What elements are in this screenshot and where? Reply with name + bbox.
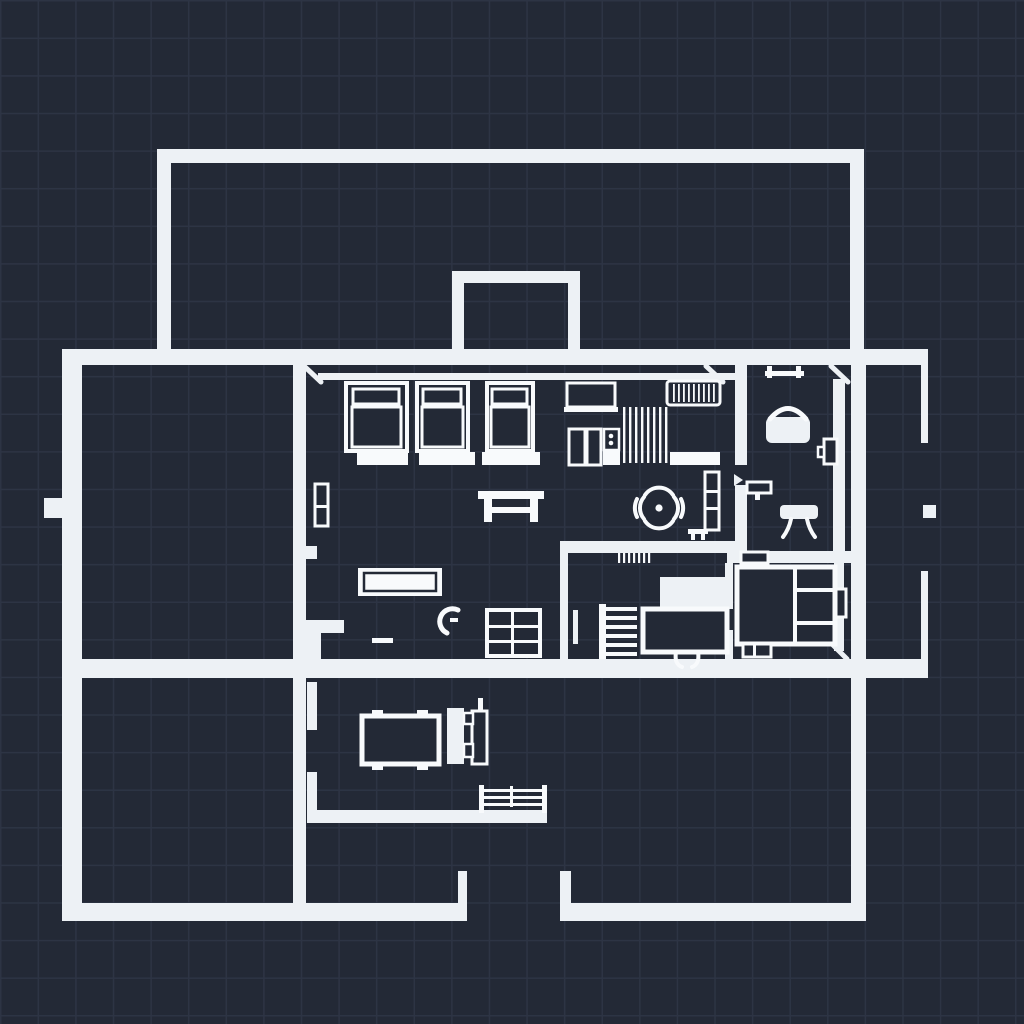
hall-radiator-tooth-4 (633, 553, 635, 563)
right-door-knob (923, 505, 936, 518)
laundry-table-tab-3 (372, 764, 383, 770)
kitchen-plinth-4 (670, 452, 720, 465)
radiator-fin-9 (713, 384, 715, 402)
door-frame-divider (315, 505, 328, 508)
stair-upper-slat-2 (629, 407, 631, 463)
bathroom-shelf-stem (755, 493, 760, 500)
stair-upper-slat-5 (647, 407, 649, 463)
hall-radiator-tooth-2 (623, 553, 625, 563)
middle-band-wall (62, 659, 928, 678)
kitchen-cabinet-3-lower-door (491, 407, 529, 447)
stairs-tread-1 (606, 607, 637, 611)
radiator-fin-7 (703, 384, 705, 402)
living-wall-nub (303, 546, 317, 559)
radiator-fin-2 (678, 384, 680, 402)
stair-upper-slat-7 (659, 407, 661, 463)
bed-headboard-line (793, 569, 797, 642)
hall-cabinet-foot-left (691, 534, 695, 540)
bed-frame (737, 567, 835, 644)
shelf-unit-row-2 (489, 640, 538, 643)
ceiling-fan-hub (655, 504, 662, 511)
bottom-wall-left (62, 903, 467, 921)
upper-band-wall (62, 349, 928, 365)
hall-radiator-tooth-7 (648, 553, 650, 563)
bench-top-bar (478, 491, 544, 499)
drying-rack-hook-upper (464, 713, 473, 724)
laundry-door-jamb-lower (307, 772, 317, 813)
towel-rail-bar (765, 371, 804, 376)
stairs-tread-3 (606, 625, 637, 629)
radiator-fin-8 (708, 384, 710, 402)
laundry-table-tab-1 (372, 710, 383, 716)
laundry-door-jamb-upper (307, 682, 317, 730)
shelf-unit-divider (511, 612, 514, 654)
bathroom-wall-shelf (747, 482, 771, 493)
entry-jamb-left (458, 871, 467, 921)
slat-bench-post-right (542, 785, 547, 813)
stove-pedestal (603, 450, 620, 465)
garage-divider-wall (293, 365, 306, 659)
slat-bench-divider (510, 786, 513, 807)
ceiling-fan-blade-top (645, 488, 673, 495)
bathroom-left-wall-lower (735, 485, 747, 553)
hall-radiator-tooth-5 (638, 553, 640, 563)
bed-pillow-divider-2 (797, 621, 835, 625)
hall-cabinet-foot-right (701, 534, 705, 540)
stair-upper-slat-6 (653, 407, 655, 463)
bench-leg-left (484, 499, 492, 522)
pedestal-leg-left (783, 519, 791, 537)
wall-sink-tap (818, 447, 824, 457)
stair-upper-slat-8 (665, 407, 667, 463)
slat-bench-post-left (479, 785, 484, 813)
kitchen-plinth-3 (482, 452, 540, 465)
left-door-knob (44, 498, 62, 518)
ceiling-fan-arc-left (635, 499, 637, 517)
shelf-unit-row-1 (489, 625, 538, 628)
kitchen-plinth-2 (419, 452, 475, 465)
stove-unit (604, 429, 619, 450)
armchair-tick (450, 618, 458, 622)
laundry-table-tab-2 (417, 710, 428, 716)
pedestal-leg-right (807, 519, 815, 537)
fridge-door-left (569, 429, 585, 465)
hall-left-wall (560, 541, 568, 678)
stairs-tread-4 (606, 634, 637, 638)
bed-end-bench-line (753, 645, 756, 656)
hall-radiator-tooth-1 (618, 553, 620, 563)
hall-radiator-tooth-6 (643, 553, 645, 563)
bathroom-left-wall-upper (735, 365, 747, 465)
hall-tall-cabinet-shelf-1 (705, 490, 719, 493)
laundry-bottom-wall (307, 810, 547, 823)
stair-upper-slat-3 (635, 407, 637, 463)
ironing-board (447, 708, 464, 764)
ceiling-fan-blade-left (640, 497, 644, 519)
kitchen-shelf-line (564, 407, 618, 412)
radiator-fin-1 (673, 384, 675, 402)
nightstand (836, 589, 846, 617)
courtyard-left-wall (157, 149, 171, 365)
hall-radiator-tooth-3 (628, 553, 630, 563)
stairs-tread-5 (606, 643, 637, 647)
bedroom-left-wall-upper (725, 563, 733, 609)
stove-knob-2 (609, 441, 614, 446)
laundry-table (362, 716, 439, 764)
bathroom-door-arrow (734, 474, 743, 486)
porch-top-wall (452, 271, 580, 283)
hall-cabinet-base (688, 529, 708, 534)
stairs-tread-6 (606, 652, 637, 656)
hall-tall-cabinet-shelf-2 (705, 507, 719, 510)
stair-upper-slat-4 (641, 407, 643, 463)
stair-upper-slat-1 (623, 407, 625, 463)
bed-end-bench (743, 644, 771, 657)
drying-rack-hook-lower (464, 744, 473, 757)
pedestal-basin-top (780, 505, 818, 519)
courtyard-top-wall (157, 149, 864, 163)
kitchen-cabinet-2-lower-door (422, 407, 463, 447)
kitchen-cabinet-1-upper-door (353, 389, 399, 404)
bench-leg-right (530, 499, 538, 522)
hall-top-wall (560, 541, 747, 553)
dining-table (643, 609, 727, 652)
radiator-fin-3 (683, 384, 685, 402)
bedroom-door-leaf (741, 552, 768, 563)
kitchen-cabinet-3-upper-door (492, 389, 527, 404)
stairs-rail (599, 604, 606, 659)
laundry-table-tab-4 (417, 764, 428, 770)
hall-floor-block (660, 577, 725, 607)
stove-knob-1 (609, 434, 614, 439)
radiator-fin-5 (693, 384, 695, 402)
outer-right-wall (851, 349, 866, 921)
fridge-door-right (587, 429, 601, 465)
bed-pillow-divider-1 (797, 588, 835, 592)
floor-plan-canvas (0, 0, 1024, 1024)
right-thin-wall-lower (921, 571, 928, 663)
radiator-fin-4 (688, 384, 690, 402)
living-corner-stub (306, 620, 321, 660)
kitchen-cabinet-2-upper-door (423, 389, 461, 404)
hall-tall-cabinet (705, 472, 719, 530)
bench-crossbar (491, 507, 530, 513)
door-threshold (372, 638, 393, 643)
ceiling-fan-blade-bottom (645, 521, 673, 528)
ceiling-fan-arc-right (681, 499, 683, 517)
courtyard-right-wall (850, 149, 864, 365)
kitchen-counter-ledge (318, 373, 735, 380)
outer-left-wall (62, 349, 82, 917)
radiator-fin-6 (698, 384, 700, 402)
kitchen-wall-panel (567, 383, 615, 407)
bottom-wall-right (560, 903, 866, 921)
drying-rack-post (478, 698, 483, 711)
stairs-tread-2 (606, 616, 637, 620)
ceiling-fan-blade-right (674, 497, 678, 519)
floor-plan-svg (0, 0, 1024, 1024)
right-thin-wall-upper (921, 365, 928, 443)
kitchen-plinth-1 (357, 452, 408, 465)
hall-door-jamb (573, 610, 578, 644)
wall-sink (824, 439, 837, 464)
kitchen-cabinet-1-lower-door (352, 407, 401, 447)
bathtub-basin (766, 417, 810, 443)
laundry-left-wall (293, 678, 306, 903)
